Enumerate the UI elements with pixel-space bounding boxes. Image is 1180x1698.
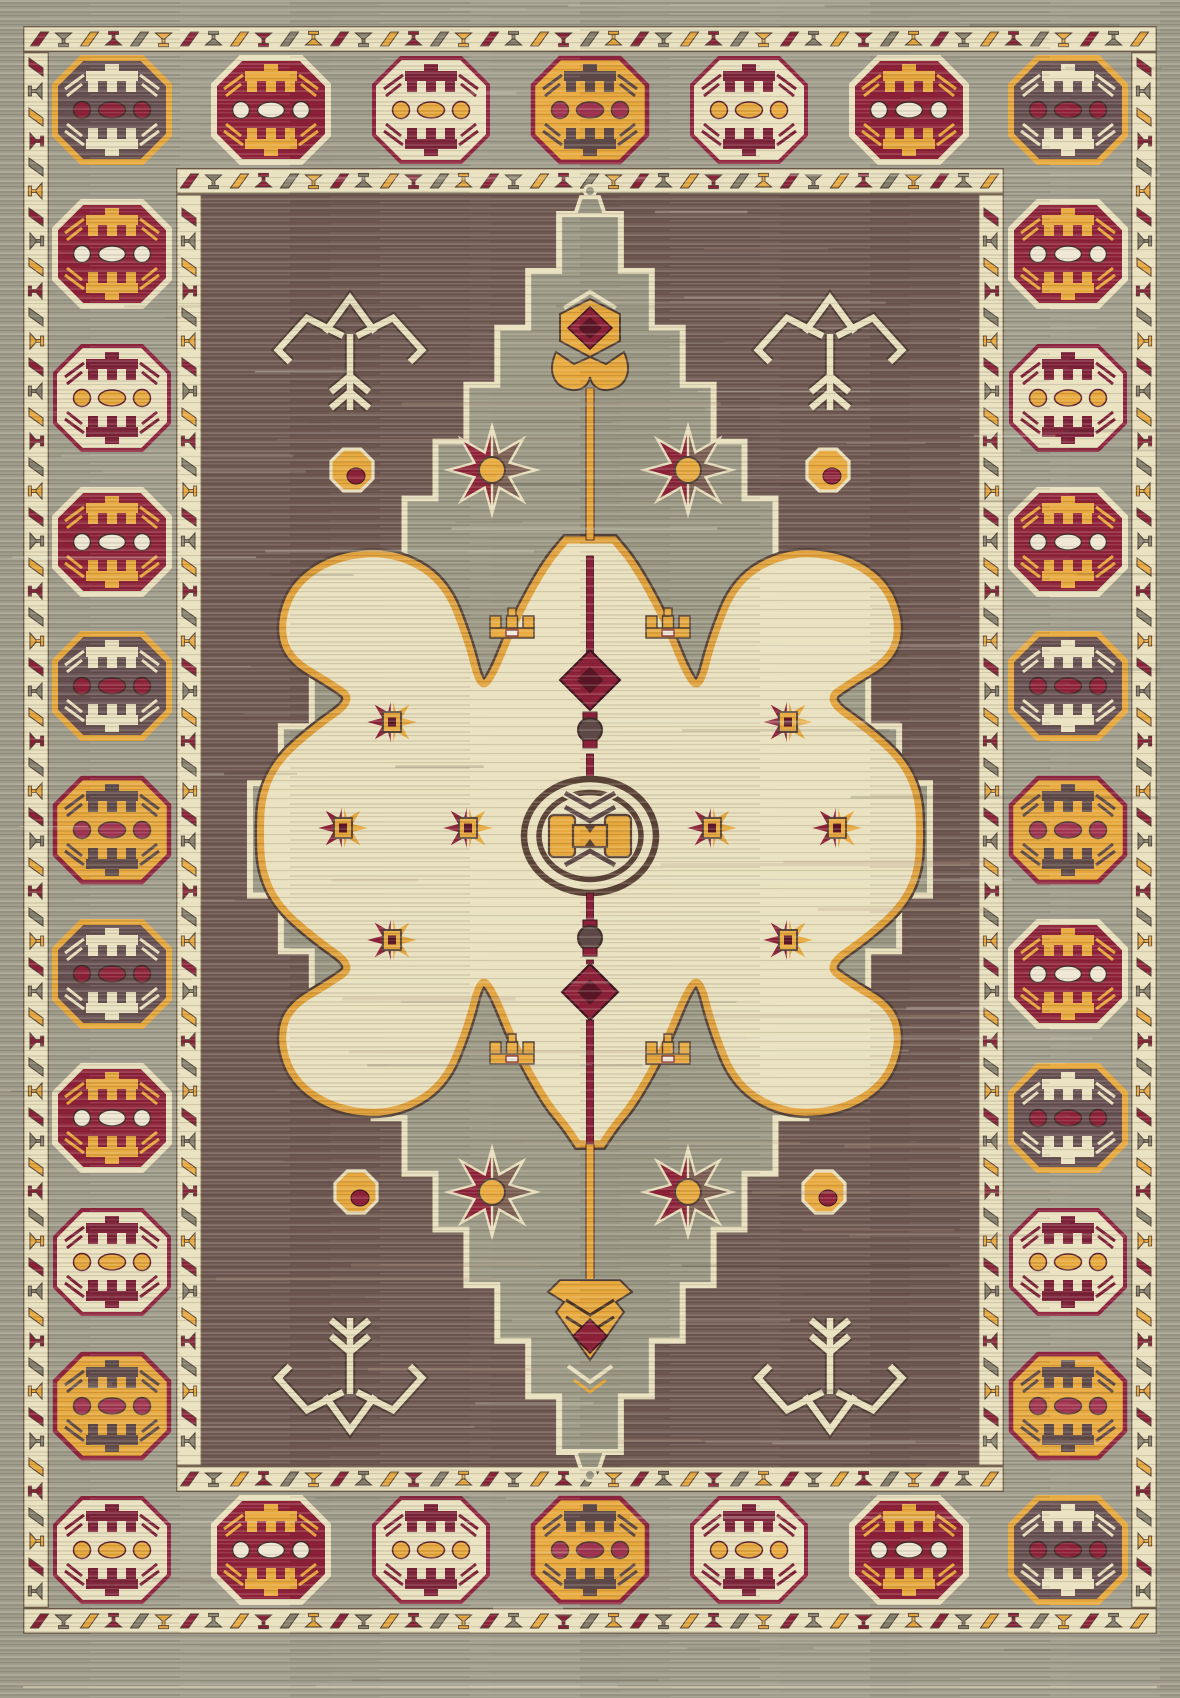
rug-photo: Machine-woven oriental rug: grey striate… [0,0,1180,1697]
weave-texture-overlay [0,0,1180,1697]
rug-end-line [23,1686,1157,1688]
rug-image [0,0,1180,1697]
